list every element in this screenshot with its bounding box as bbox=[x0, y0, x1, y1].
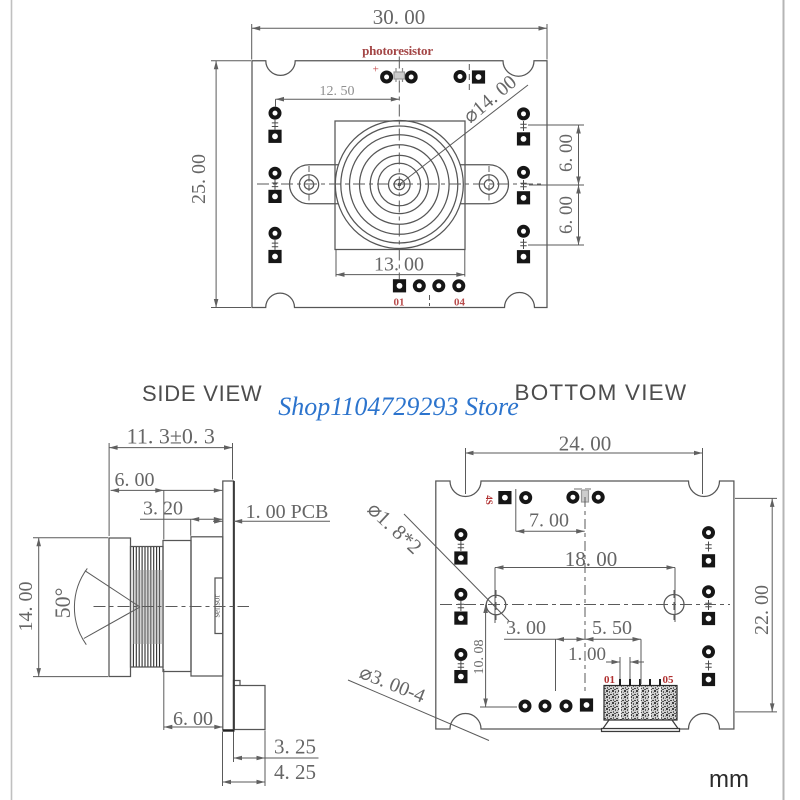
svg-text:10. 08: 10. 08 bbox=[472, 640, 487, 675]
svg-text:6. 00: 6. 00 bbox=[173, 708, 213, 730]
svg-text:01: 01 bbox=[604, 674, 615, 686]
svg-text:4S: 4S bbox=[484, 495, 494, 505]
svg-text:photoresistor: photoresistor bbox=[362, 43, 433, 58]
svg-text:30. 00: 30. 00 bbox=[373, 5, 426, 29]
svg-text:3. 20: 3. 20 bbox=[143, 498, 183, 520]
svg-text:24. 00: 24. 00 bbox=[559, 432, 612, 456]
svg-text:04: 04 bbox=[454, 297, 466, 309]
svg-text:50°: 50° bbox=[50, 588, 75, 619]
svg-text:11. 3±0. 3: 11. 3±0. 3 bbox=[127, 424, 215, 449]
svg-text:22. 00: 22. 00 bbox=[751, 585, 773, 635]
svg-text:Shop1104729293 Store: Shop1104729293 Store bbox=[278, 392, 519, 421]
svg-text:3. 25: 3. 25 bbox=[274, 735, 316, 759]
svg-text:+: + bbox=[373, 64, 379, 76]
svg-text:SIDE VIEW: SIDE VIEW bbox=[142, 381, 262, 406]
svg-text:18. 00: 18. 00 bbox=[565, 547, 618, 571]
svg-text:12. 50: 12. 50 bbox=[320, 84, 355, 99]
svg-text:BOTTOM VIEW: BOTTOM VIEW bbox=[515, 380, 688, 405]
svg-text:5. 50: 5. 50 bbox=[592, 617, 632, 639]
svg-text:mm: mm bbox=[709, 766, 749, 793]
svg-text:13. 00: 13. 00 bbox=[374, 254, 424, 276]
svg-text:7. 00: 7. 00 bbox=[529, 510, 569, 532]
svg-text:6. 00: 6. 00 bbox=[556, 196, 577, 234]
svg-text:01: 01 bbox=[394, 297, 405, 309]
svg-text:1. 00 PCB: 1. 00 PCB bbox=[246, 501, 329, 523]
svg-text:1. 00: 1. 00 bbox=[568, 644, 606, 665]
svg-text:25. 00: 25. 00 bbox=[188, 154, 210, 204]
svg-text:6. 00: 6. 00 bbox=[115, 469, 155, 491]
svg-text:3. 00: 3. 00 bbox=[506, 617, 546, 639]
svg-text:6. 00: 6. 00 bbox=[556, 134, 577, 172]
svg-text:14. 00: 14. 00 bbox=[15, 582, 37, 632]
svg-text:05: 05 bbox=[663, 674, 675, 686]
svg-text:4. 25: 4. 25 bbox=[274, 760, 316, 784]
